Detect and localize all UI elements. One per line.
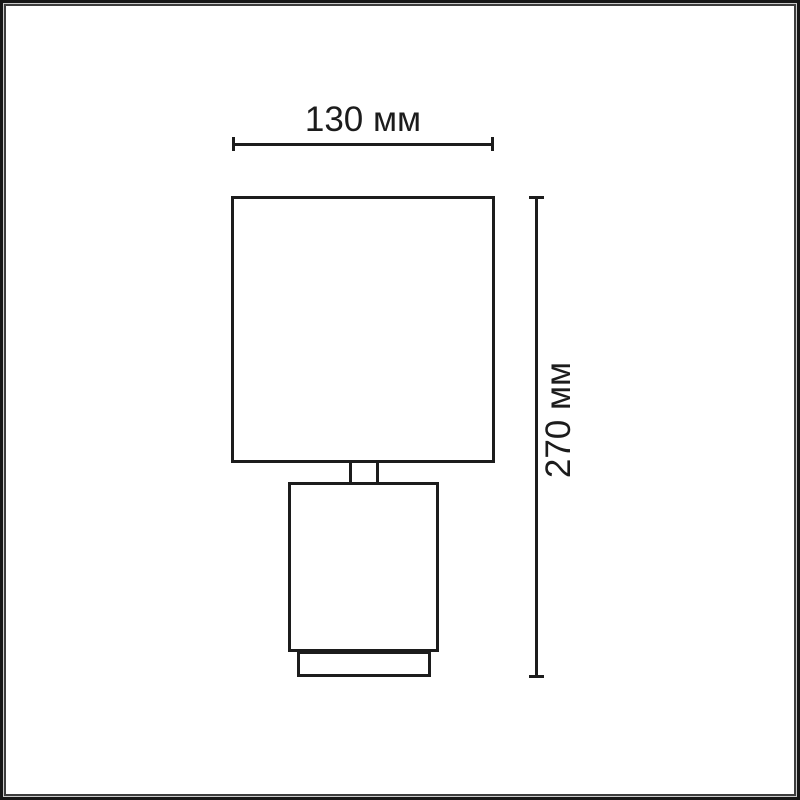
lamp-shade-outline [231, 196, 495, 463]
lamp-plinth-outline [297, 651, 431, 677]
width-dimension-right-tick [491, 137, 494, 151]
drawing-stage: 130 мм 270 мм [0, 0, 800, 800]
height-dimension-top-tick [529, 196, 544, 199]
width-dimension-line [232, 143, 494, 146]
width-dimension-left-tick [232, 137, 235, 151]
width-dimension-label: 130 мм [233, 102, 493, 138]
height-dimension-line [535, 196, 538, 678]
height-dimension-bottom-tick [529, 675, 544, 678]
lamp-base-outline [288, 482, 439, 652]
height-dimension-label: 270 мм [541, 340, 577, 500]
